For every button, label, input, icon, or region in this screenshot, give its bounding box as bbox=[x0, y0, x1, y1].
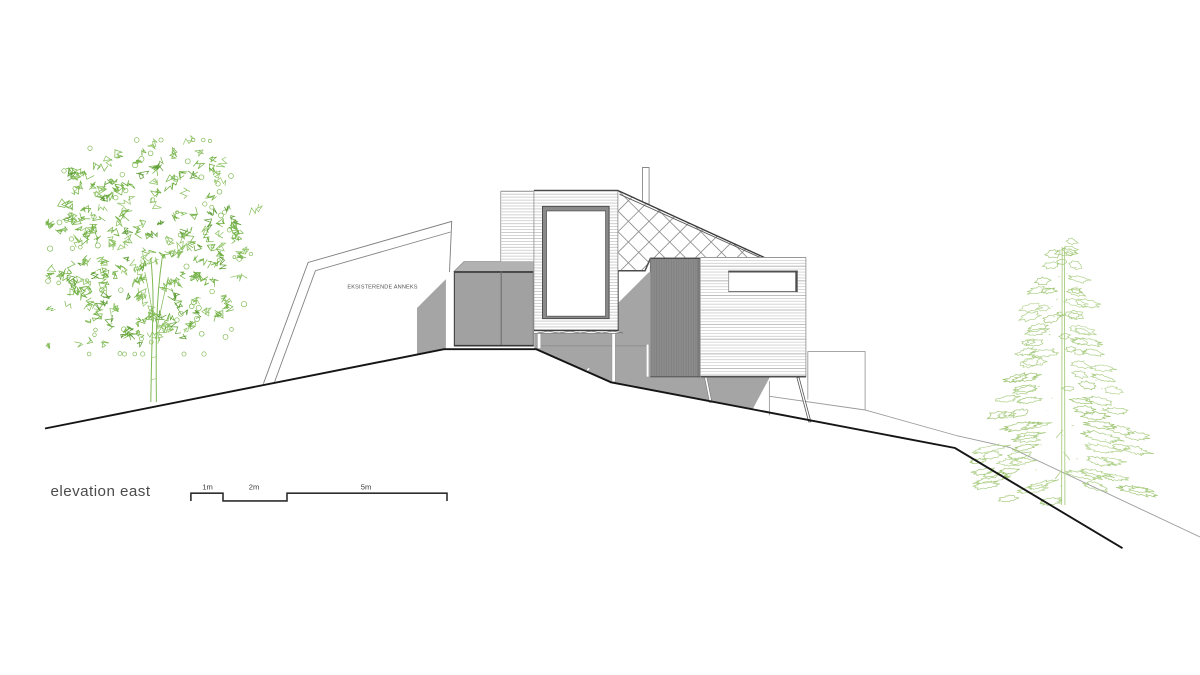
svg-text:2m: 2m bbox=[249, 483, 260, 492]
svg-text:1m: 1m bbox=[202, 483, 213, 492]
svg-text:EKSISTERENDE ANNEKS: EKSISTERENDE ANNEKS bbox=[347, 285, 417, 291]
svg-text:5m: 5m bbox=[361, 483, 372, 492]
svg-text:elevation east: elevation east bbox=[51, 483, 151, 500]
